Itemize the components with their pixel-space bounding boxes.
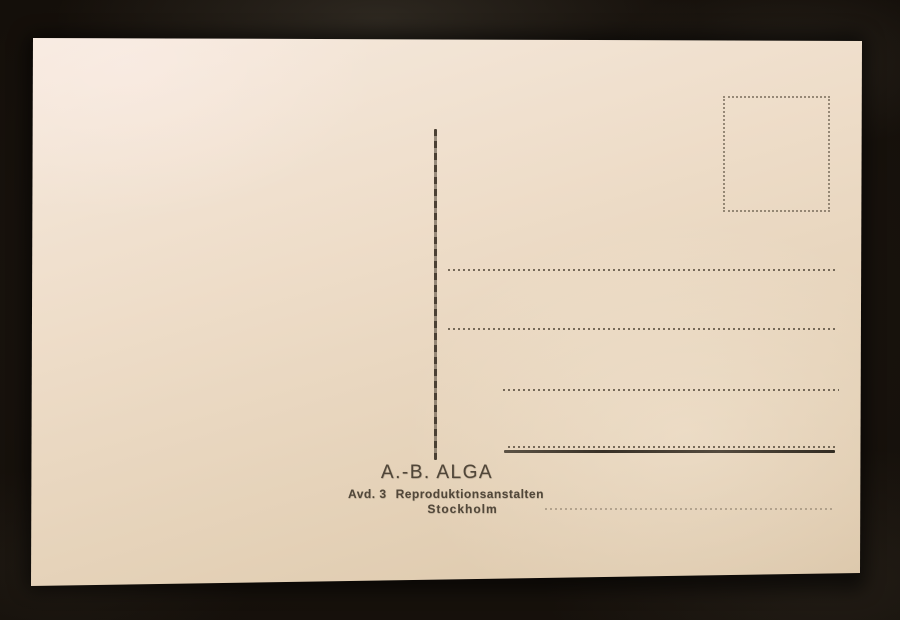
publisher-name: A.-B. ALGA — [337, 462, 537, 484]
address-line-1 — [448, 269, 835, 271]
address-rule-line — [504, 450, 835, 453]
address-line-4 — [508, 446, 835, 448]
postcard-back: A.-B. ALGA Avd. 3 Reproduktionsanstalten… — [0, 0, 900, 620]
leather-table-surface: A.-B. ALGA Avd. 3 Reproduktionsanstalten… — [0, 0, 900, 620]
publisher-department-text: Reproduktionsanstalten — [396, 487, 544, 501]
address-divider-line — [434, 129, 437, 460]
address-line-2 — [448, 328, 837, 330]
address-line-5 — [545, 508, 832, 510]
publisher-department: Avd. 3 Reproduktionsanstalten — [348, 487, 544, 501]
stamp-box — [723, 96, 830, 212]
publisher-city: Stockholm — [392, 502, 533, 516]
address-line-3 — [503, 389, 839, 391]
publisher-department-label: Avd. 3 — [348, 487, 387, 501]
